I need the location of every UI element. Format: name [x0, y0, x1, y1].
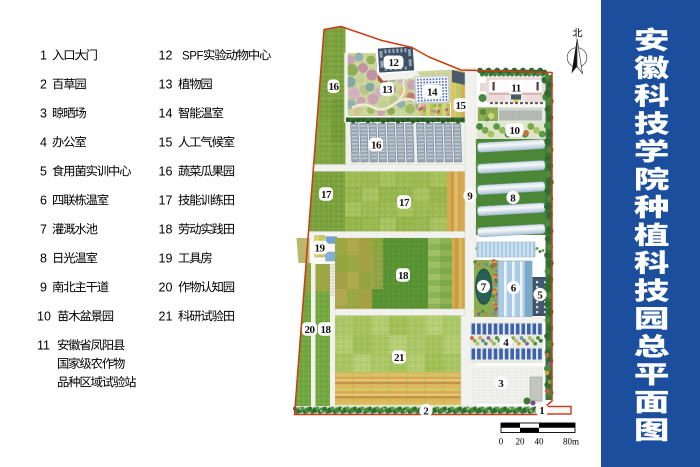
svg-text:12: 12	[159, 48, 173, 62]
svg-text:2: 2	[40, 77, 47, 91]
svg-text:40: 40	[535, 437, 545, 447]
svg-text:19: 19	[315, 242, 326, 254]
svg-text:17: 17	[399, 197, 410, 209]
svg-text:20: 20	[159, 280, 173, 294]
svg-text:7: 7	[481, 281, 487, 293]
svg-text:21: 21	[159, 309, 173, 323]
svg-text:SPF: SPF	[182, 50, 204, 62]
svg-text:6: 6	[40, 193, 47, 207]
svg-text:2: 2	[423, 405, 429, 417]
svg-text:17: 17	[159, 193, 173, 207]
svg-text:13: 13	[159, 77, 173, 91]
svg-text:21: 21	[394, 352, 404, 364]
svg-text:8: 8	[40, 251, 47, 265]
svg-text:12: 12	[389, 57, 400, 69]
svg-text:5: 5	[537, 289, 543, 301]
svg-text:18: 18	[321, 324, 332, 336]
svg-text:16: 16	[371, 139, 382, 151]
svg-text:18: 18	[398, 270, 409, 282]
svg-text:15: 15	[456, 100, 467, 112]
svg-text:80m: 80m	[563, 437, 579, 447]
svg-text:14: 14	[159, 106, 173, 120]
svg-text:3: 3	[498, 378, 504, 390]
svg-text:16: 16	[159, 164, 173, 178]
svg-text:10: 10	[510, 125, 521, 137]
svg-text:4: 4	[40, 135, 47, 149]
svg-text:0: 0	[499, 437, 504, 447]
svg-text:9: 9	[467, 190, 473, 202]
svg-text:6: 6	[511, 282, 517, 294]
svg-text:20: 20	[305, 324, 316, 336]
svg-text:17: 17	[321, 189, 332, 201]
svg-text:7: 7	[40, 222, 47, 236]
svg-text:19: 19	[159, 251, 173, 265]
svg-text:1: 1	[40, 48, 47, 62]
svg-text:13: 13	[382, 84, 393, 96]
svg-text:15: 15	[159, 135, 173, 149]
svg-text:16: 16	[329, 81, 340, 93]
svg-text:4: 4	[503, 337, 509, 349]
svg-text:20: 20	[516, 437, 526, 447]
svg-text:14: 14	[427, 86, 438, 98]
svg-text:5: 5	[40, 164, 47, 178]
svg-text:1: 1	[539, 405, 545, 417]
svg-text:8: 8	[510, 192, 516, 204]
svg-text:10: 10	[37, 309, 51, 323]
svg-text:3: 3	[40, 106, 47, 120]
svg-text:11: 11	[511, 82, 520, 94]
svg-text:18: 18	[159, 222, 173, 236]
svg-text:9: 9	[40, 280, 47, 294]
svg-text:11: 11	[37, 338, 50, 352]
